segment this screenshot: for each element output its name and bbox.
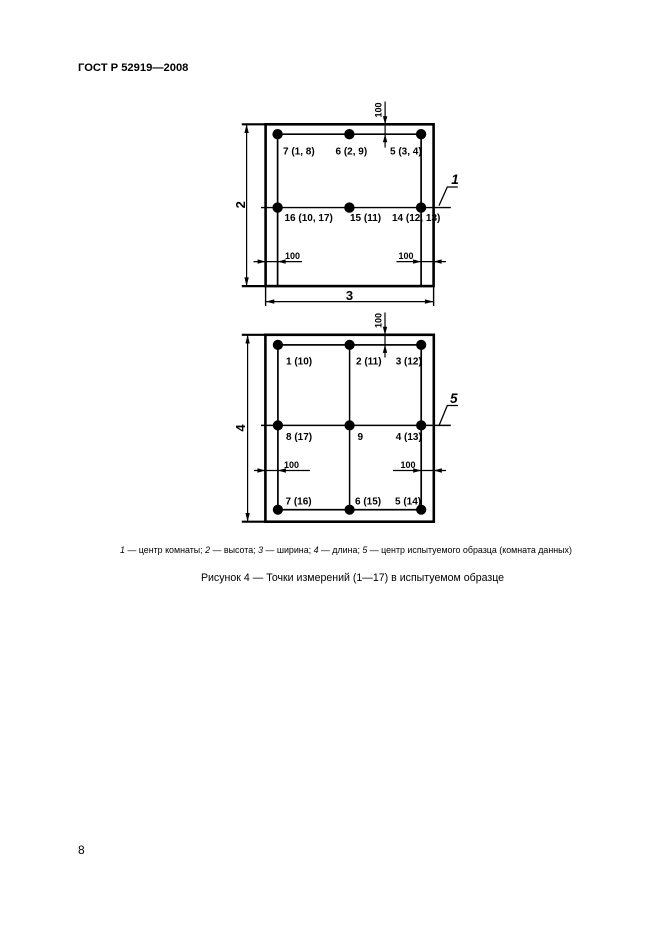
svg-text:5 (14): 5 (14) [395, 497, 421, 508]
svg-text:100: 100 [374, 102, 384, 117]
svg-text:100: 100 [284, 460, 299, 470]
svg-text:8 (17): 8 (17) [286, 432, 312, 443]
svg-text:100: 100 [400, 460, 415, 470]
svg-text:100: 100 [285, 251, 300, 261]
svg-text:1: 1 [451, 172, 459, 187]
svg-text:100: 100 [398, 251, 413, 261]
svg-text:16 (10, 17): 16 (10, 17) [285, 213, 333, 224]
svg-text:3 (12): 3 (12) [396, 357, 422, 368]
svg-text:6 (2, 9): 6 (2, 9) [336, 147, 368, 158]
svg-text:7 (1, 8): 7 (1, 8) [283, 147, 315, 158]
svg-text:100: 100 [374, 313, 384, 328]
svg-text:3: 3 [346, 288, 353, 303]
svg-text:1 (10): 1 (10) [286, 357, 312, 368]
svg-text:14 (12, 13): 14 (12, 13) [392, 213, 440, 224]
svg-text:5 (3, 4): 5 (3, 4) [390, 147, 422, 158]
svg-text:7 (16): 7 (16) [286, 497, 312, 508]
svg-text:4 (13): 4 (13) [396, 432, 422, 443]
svg-text:2 (11): 2 (11) [356, 357, 382, 368]
svg-text:2: 2 [233, 201, 248, 208]
svg-text:15 (11): 15 (11) [350, 213, 381, 224]
svg-text:9: 9 [358, 432, 364, 443]
svg-text:5: 5 [450, 391, 458, 406]
svg-text:6 (15): 6 (15) [355, 497, 381, 508]
svg-text:4: 4 [233, 424, 248, 432]
